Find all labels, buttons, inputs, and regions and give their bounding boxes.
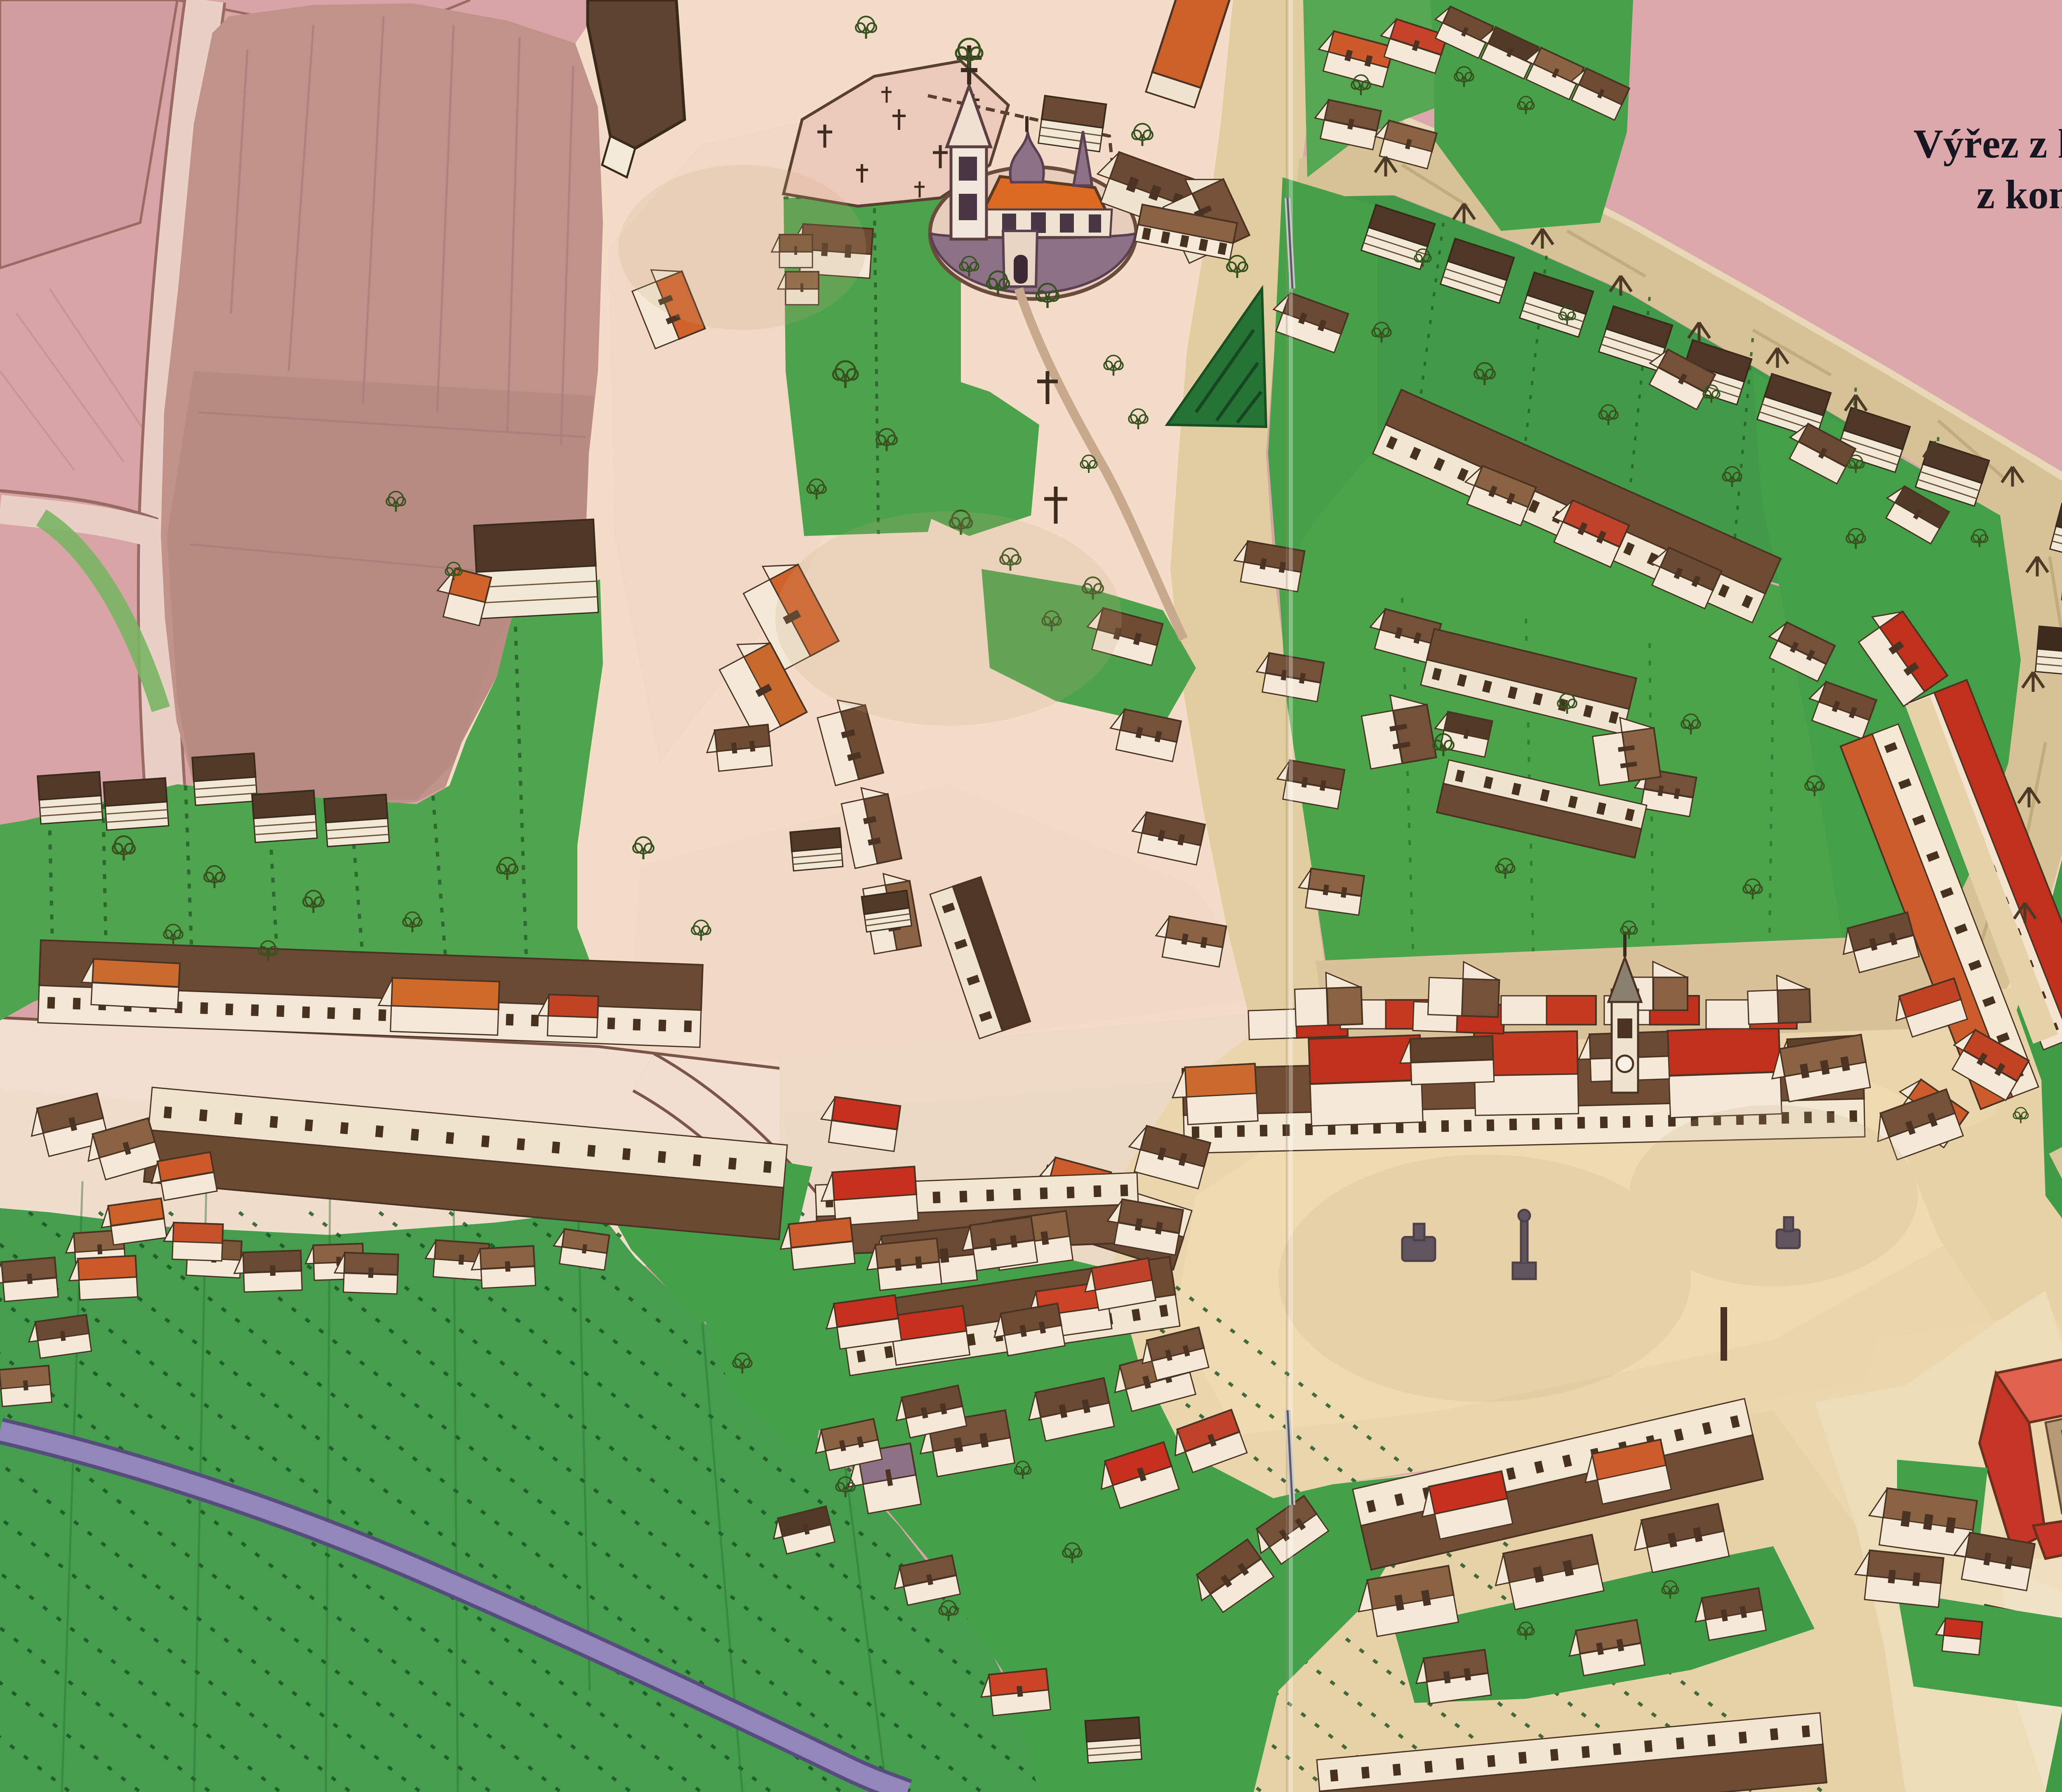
svg-text:Výřez z hasičského plánu: Výřez z hasičského plánu	[1914, 121, 2062, 167]
svg-text:z konce 19. století.: z konce 19. století.	[1977, 172, 2062, 217]
